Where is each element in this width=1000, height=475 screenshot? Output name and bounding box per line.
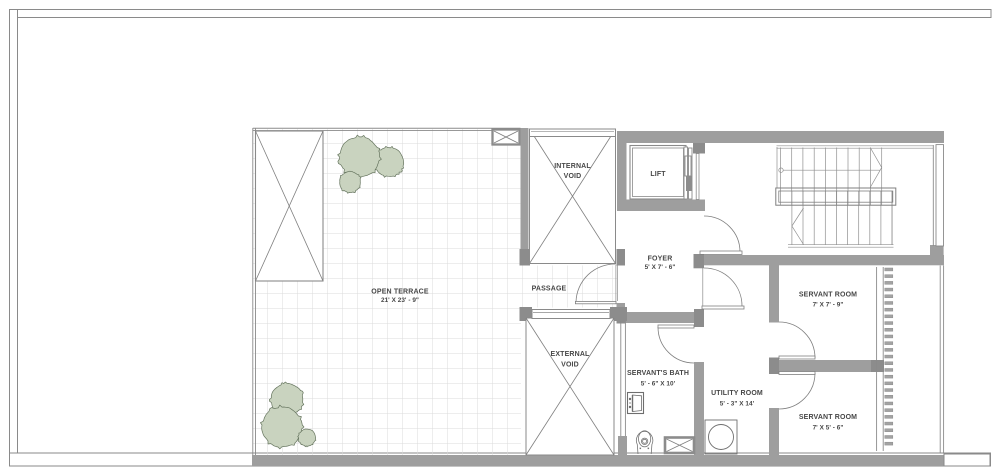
svg-text:VOID: VOID bbox=[561, 362, 579, 369]
svg-text:5' - 3" X 14': 5' - 3" X 14' bbox=[720, 401, 755, 408]
svg-text:7' X 7' - 9": 7' X 7' - 9" bbox=[813, 302, 844, 309]
svg-text:SERVANT ROOM: SERVANT ROOM bbox=[799, 292, 857, 299]
svg-text:PASSAGE: PASSAGE bbox=[532, 286, 567, 293]
svg-text:21' X 23' - 9": 21' X 23' - 9" bbox=[381, 297, 419, 304]
svg-text:OPEN TERRACE: OPEN TERRACE bbox=[371, 289, 429, 296]
svg-text:VOID: VOID bbox=[564, 173, 582, 180]
svg-text:UTILITY ROOM: UTILITY ROOM bbox=[711, 390, 763, 397]
svg-text:7' X 5' - 6": 7' X 5' - 6" bbox=[813, 425, 844, 432]
svg-text:5' - 6" X 10': 5' - 6" X 10' bbox=[641, 381, 676, 388]
svg-text:SERVANT ROOM: SERVANT ROOM bbox=[799, 414, 857, 421]
svg-text:INTERNAL: INTERNAL bbox=[554, 163, 591, 170]
svg-text:SERVANT'S BATH: SERVANT'S BATH bbox=[627, 370, 689, 377]
svg-text:5' X 7' - 6": 5' X 7' - 6" bbox=[645, 264, 676, 271]
svg-text:FOYER: FOYER bbox=[648, 256, 673, 263]
svg-text:LIFT: LIFT bbox=[650, 171, 666, 178]
svg-text:EXTERNAL: EXTERNAL bbox=[551, 351, 590, 358]
